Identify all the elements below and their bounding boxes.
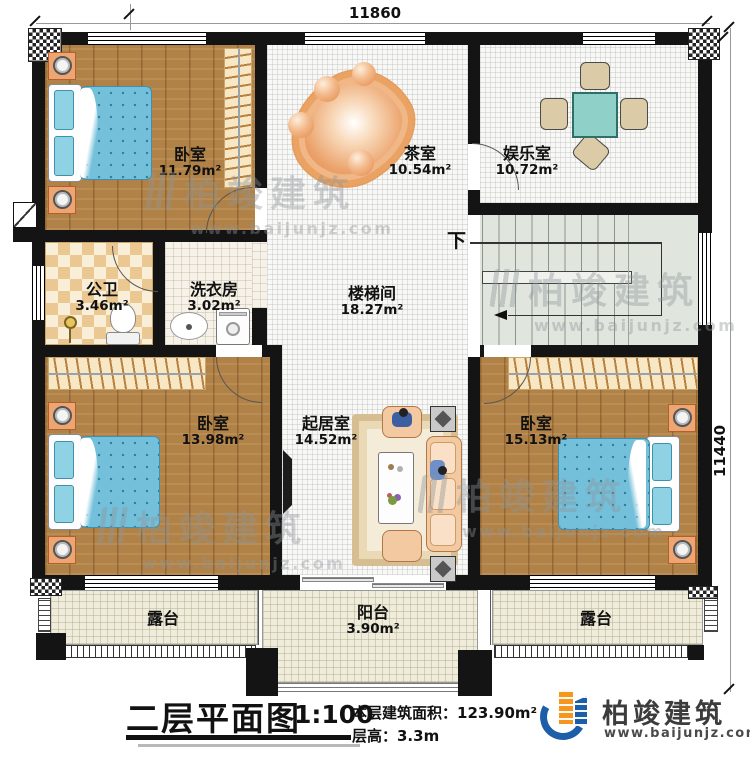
chair — [580, 62, 610, 90]
dimension-tick — [29, 15, 40, 26]
nightstand — [48, 402, 76, 430]
logo-icon — [540, 686, 598, 746]
floor-drain-stem — [69, 329, 71, 343]
logo-website: www.baijunjz.com — [604, 726, 750, 741]
pillow — [652, 487, 672, 525]
tea-decor-ball — [314, 76, 340, 102]
wall-above-bed2-a — [32, 345, 216, 357]
window-tea-top — [305, 32, 425, 45]
wall-bed1-tea — [255, 32, 267, 188]
room-area: 11.79m² — [135, 163, 245, 180]
terrace-left-pillar — [36, 633, 66, 660]
room-label-bedroom-br: 卧室 15.13m² — [481, 415, 591, 449]
dimension-right-label: 11440 — [711, 419, 729, 483]
stair-path-top — [470, 242, 662, 244]
room-label-stairwell: 楼梯间 18.27m² — [317, 285, 427, 319]
room-label-terrace-left: 露台 — [108, 610, 218, 627]
lamp-icon — [53, 56, 72, 75]
lamp-icon — [673, 408, 692, 427]
terrace-right-steps — [704, 598, 718, 632]
dimension-tick — [723, 21, 734, 32]
sofa-cushion — [430, 478, 456, 510]
wall-below-stairs-b — [531, 345, 712, 357]
wardrobe-bedroom-bottom-left — [48, 357, 206, 390]
wardrobe-bedroom-bottom-right — [508, 357, 698, 390]
pillow — [54, 441, 74, 479]
hatch-corner-bottom-right — [688, 586, 718, 599]
pillow — [652, 443, 672, 481]
pillow — [54, 90, 74, 130]
bed-sheet-fold — [80, 88, 98, 178]
hatch-corner-top-right — [688, 28, 720, 60]
person-head — [438, 466, 447, 475]
terrace-left-steps — [38, 598, 51, 632]
hatch-corner-bottom-left — [30, 578, 62, 596]
balcony-sliding-door-left — [302, 577, 374, 582]
stair-direction-arrow — [494, 310, 507, 320]
nightstand — [668, 536, 696, 564]
title-underline-gray — [138, 744, 360, 747]
room-label-tea: 茶室 10.54m² — [365, 145, 475, 179]
dimension-top-ext — [130, 4, 131, 30]
wall-below-entertainment — [468, 203, 712, 215]
room-label-living: 起居室 14.52m² — [271, 415, 381, 449]
floor-plan-page: 下 11860 11440 — [0, 0, 750, 761]
nightstand — [48, 52, 76, 80]
dimension-top-label: 11860 — [335, 4, 415, 22]
room-label-laundry: 洗衣房 3.02m² — [159, 281, 269, 315]
room-name: 卧室 — [481, 415, 591, 432]
room-label-bathroom: 公卫 3.46m² — [47, 281, 157, 315]
room-area: 3.46m² — [47, 298, 157, 315]
room-name: 卧室 — [158, 415, 268, 432]
chair — [540, 98, 568, 130]
side-table — [430, 406, 456, 432]
wall-living-bed3 — [468, 357, 480, 590]
nightstand — [668, 404, 696, 432]
wall-bed2-living — [270, 345, 282, 590]
plan-floor-height: 层高：3.3m — [352, 725, 537, 748]
window-bathroom-left — [32, 266, 45, 320]
room-name: 阳台 — [318, 604, 428, 621]
bed-sheet-fold — [80, 438, 98, 526]
brand-logo: 柏竣建筑 www.baijunjz.com — [540, 686, 740, 750]
balcony-railing — [278, 683, 458, 694]
plan-title: 二层平面图 — [126, 692, 301, 740]
room-name: 公卫 — [47, 281, 157, 298]
stair-center-rail — [482, 271, 632, 284]
room-name: 娱乐室 — [472, 145, 582, 162]
stair-path-right — [661, 242, 663, 316]
tea-decor-ball — [288, 112, 314, 138]
room-name: 洗衣房 — [159, 281, 269, 298]
balcony-sliding-door-right — [372, 583, 444, 588]
terrace-right-pillar — [688, 645, 704, 660]
room-name: 卧室 — [135, 146, 245, 163]
pillow — [54, 136, 74, 176]
dimension-tick — [701, 15, 712, 26]
game-table — [572, 92, 618, 138]
terrace-balcony-divider — [258, 590, 259, 645]
room-name: 茶室 — [365, 145, 475, 162]
dimension-right-line — [730, 28, 731, 692]
room-label-terrace-right: 露台 — [541, 610, 651, 627]
lamp-icon — [53, 190, 72, 209]
window-stairwell-right — [698, 233, 712, 325]
terrace-right-railing — [494, 645, 700, 658]
room-area: 3.02m² — [159, 298, 269, 315]
table-cups — [388, 464, 394, 470]
table-flowers — [388, 496, 397, 505]
wall-tv — [283, 450, 292, 514]
room-area: 3.90m² — [318, 621, 428, 638]
room-area: 14.52m² — [271, 432, 381, 449]
balcony-pillar-left — [246, 648, 278, 696]
wall-tea-ent-upper — [468, 32, 480, 144]
logo-building-orange-icon — [559, 690, 573, 724]
stair-down-label: 下 — [447, 226, 466, 253]
lamp-icon — [53, 540, 72, 559]
pillow — [54, 485, 74, 523]
sofa-armchair-bottom — [382, 530, 422, 562]
toilet-tank — [106, 332, 140, 345]
room-label-balcony: 阳台 3.90m² — [318, 604, 428, 638]
room-name: 起居室 — [271, 415, 381, 432]
side-table — [430, 556, 456, 582]
stair-landing-edge — [628, 215, 629, 345]
person-head — [399, 408, 408, 417]
room-name: 露台 — [108, 610, 218, 627]
balcony-terrace-divider — [490, 590, 491, 645]
bed-sheet-fold — [628, 440, 646, 528]
vent-shaft — [13, 202, 37, 228]
room-label-entertainment: 娱乐室 10.72m² — [472, 145, 582, 179]
lamp-icon — [53, 406, 72, 425]
vent-shaft-wall — [13, 228, 35, 242]
coffee-table — [378, 452, 414, 524]
tea-decor-ball — [352, 62, 376, 86]
chair — [620, 98, 648, 130]
room-area: 10.54m² — [365, 162, 475, 179]
nightstand — [48, 186, 76, 214]
window-bedroom-br-bottom — [530, 575, 655, 590]
room-area: 15.13m² — [481, 432, 591, 449]
dimension-top-line — [36, 23, 710, 24]
stair-path-bottom — [508, 315, 662, 317]
room-label-bedroom-tl: 卧室 11.79m² — [135, 146, 245, 180]
window-bedroom-bl-bottom — [85, 575, 218, 590]
terrace-left-railing — [52, 645, 256, 658]
room-name: 楼梯间 — [317, 285, 427, 302]
room-area: 13.98m² — [158, 432, 268, 449]
sofa-cushion — [430, 514, 456, 546]
wall-below-stairs-a — [480, 345, 484, 357]
balcony-pillar-right — [458, 650, 492, 696]
room-area: 10.72m² — [472, 162, 582, 179]
dimension-tick — [123, 8, 134, 19]
window-entertainment-top — [583, 32, 655, 45]
laundry-sink-drain — [186, 324, 192, 330]
room-label-bedroom-bl: 卧室 13.98m² — [158, 415, 268, 449]
window-bedroom-tl-top — [88, 32, 206, 45]
room-area: 18.27m² — [317, 302, 427, 319]
floor-drain-icon — [64, 316, 77, 329]
plan-meta: 本层建筑面积：123.90m² 层高：3.3m — [352, 702, 537, 748]
lamp-icon — [673, 540, 692, 559]
room-name: 露台 — [541, 610, 651, 627]
washing-machine-door — [226, 322, 240, 336]
nightstand — [48, 536, 76, 564]
plan-area-total: 本层建筑面积：123.90m² — [352, 702, 537, 725]
title-underline-black — [126, 735, 351, 740]
